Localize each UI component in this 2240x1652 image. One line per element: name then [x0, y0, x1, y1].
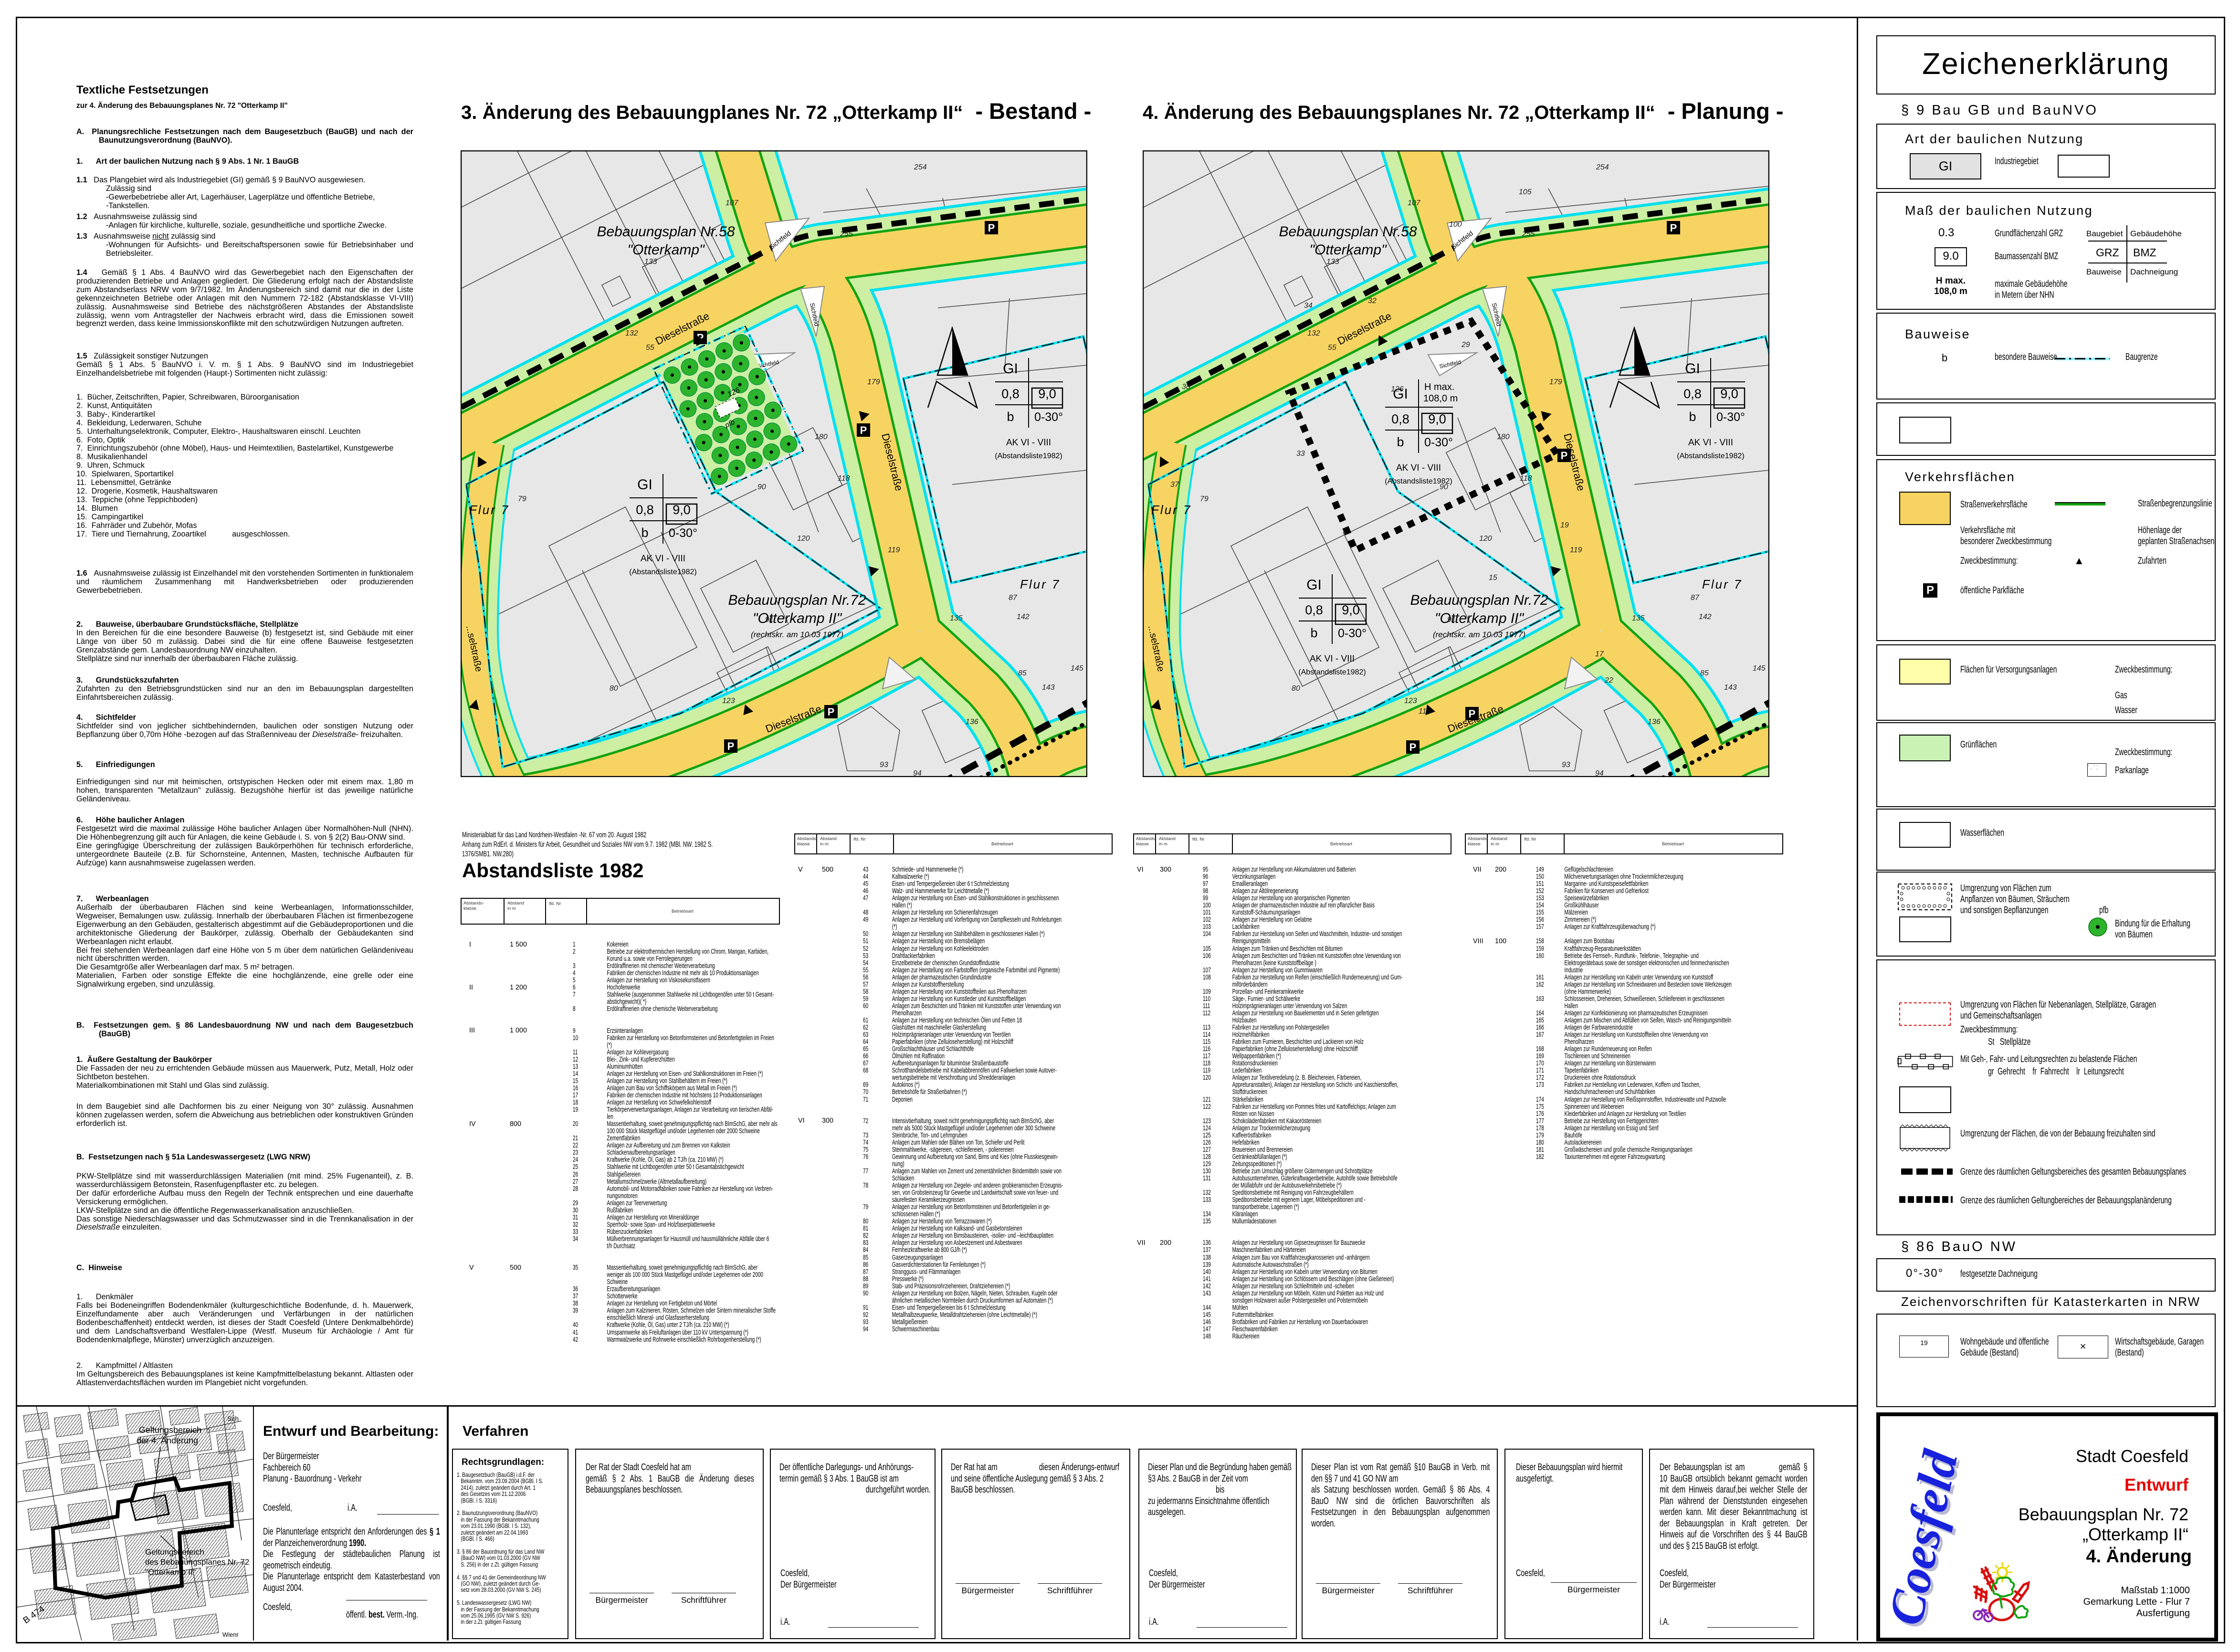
svg-text:133: 133	[1326, 258, 1339, 266]
svg-text:90: 90	[1440, 483, 1448, 491]
svg-text:136: 136	[966, 718, 978, 726]
svg-text:Bebauungsplan Nr.72: Bebauungsplan Nr.72	[728, 592, 866, 608]
svg-text:AK VI - VIII: AK VI - VIII	[1688, 438, 1733, 448]
svg-text:P: P	[828, 706, 835, 718]
svg-text:Wienr: Wienr	[222, 1631, 239, 1638]
svg-text:Flur 7: Flur 7	[1151, 503, 1191, 517]
svg-text:Bebauungsplan Nr.58: Bebauungsplan Nr.58	[597, 224, 735, 240]
svg-text:118: 118	[838, 474, 850, 483]
svg-text:107: 107	[726, 199, 739, 207]
svg-text:85: 85	[1700, 669, 1709, 677]
svg-text:Geltungsbereich: Geltungsbereich	[139, 1425, 201, 1435]
svg-text:37: 37	[1170, 481, 1179, 489]
svg-text:(Abstandsliste1982): (Abstandsliste1982)	[995, 452, 1062, 460]
svg-text:180: 180	[1497, 433, 1510, 441]
svg-text:AK VI - VIII: AK VI - VIII	[1310, 654, 1355, 664]
svg-text:0-30°: 0-30°	[1034, 410, 1063, 424]
svg-text:94: 94	[1595, 769, 1604, 777]
svg-text:136: 136	[1648, 718, 1661, 726]
svg-text:0-30°: 0-30°	[669, 526, 697, 540]
svg-text:100: 100	[1449, 221, 1462, 229]
svg-text:105: 105	[1519, 188, 1532, 196]
svg-text:P: P	[988, 222, 995, 234]
svg-text:255: 255	[1522, 230, 1535, 238]
svg-text:91: 91	[765, 616, 774, 624]
svg-text:135: 135	[1632, 614, 1645, 622]
svg-text:80: 80	[1292, 684, 1300, 693]
svg-text:79: 79	[1200, 495, 1209, 503]
svg-text:0-30°: 0-30°	[1716, 410, 1745, 424]
svg-text:254: 254	[1596, 163, 1609, 171]
svg-text:85: 85	[1018, 669, 1027, 677]
svg-text:9,0: 9,0	[1342, 603, 1360, 617]
svg-text:GI: GI	[1003, 361, 1018, 377]
svg-text:GI: GI	[637, 477, 652, 493]
svg-text:91: 91	[1447, 616, 1456, 624]
svg-text:108,0 m: 108,0 m	[1423, 393, 1458, 404]
svg-text:135: 135	[950, 614, 963, 622]
svg-text:93: 93	[880, 761, 888, 769]
svg-text:AK VI - VIII: AK VI - VIII	[1006, 438, 1051, 448]
svg-text:29: 29	[1461, 341, 1470, 349]
svg-text:254: 254	[914, 163, 927, 171]
svg-text:123: 123	[1404, 697, 1417, 705]
svg-text:55: 55	[1328, 344, 1336, 352]
svg-text:33: 33	[1296, 450, 1305, 458]
svg-text:11: 11	[1419, 707, 1427, 716]
svg-text:79: 79	[518, 495, 526, 503]
svg-text:32: 32	[1368, 297, 1377, 305]
svg-text:0,8: 0,8	[1001, 387, 1020, 401]
svg-text:55: 55	[646, 344, 654, 352]
svg-text:179: 179	[867, 378, 880, 386]
svg-text:93: 93	[1562, 761, 1570, 769]
svg-text:AK VI - VIII: AK VI - VIII	[641, 554, 685, 564]
svg-text:90: 90	[757, 483, 766, 491]
svg-text:38: 38	[1182, 383, 1190, 391]
svg-text:"Otterkamp": "Otterkamp"	[627, 242, 705, 258]
svg-text:Flur 7: Flur 7	[469, 503, 509, 517]
svg-text:(Abstandsliste1982): (Abstandsliste1982)	[1677, 452, 1744, 460]
svg-text:9,0: 9,0	[673, 503, 691, 517]
svg-text:0-30°: 0-30°	[1424, 436, 1453, 449]
svg-text:0,8: 0,8	[1305, 603, 1323, 617]
svg-text:der 4. Änderung: der 4. Änderung	[137, 1436, 198, 1445]
svg-text:22: 22	[1604, 676, 1613, 684]
svg-text:87: 87	[1691, 594, 1700, 602]
svg-text:P: P	[1561, 450, 1568, 462]
svg-text:b: b	[1310, 626, 1317, 640]
svg-text:132: 132	[1307, 329, 1320, 337]
svg-text:9,0: 9,0	[1720, 387, 1738, 401]
svg-text:P: P	[1670, 222, 1677, 234]
svg-text:126: 126	[1391, 385, 1404, 393]
svg-text:P: P	[860, 424, 867, 436]
svg-text:119: 119	[888, 546, 900, 554]
svg-text:Flur 7: Flur 7	[1702, 577, 1742, 591]
svg-text:"Otterkamp II": "Otterkamp II"	[145, 1568, 196, 1577]
svg-text:"Otterkamp": "Otterkamp"	[1309, 242, 1387, 258]
svg-text:des Bebauungsplanes Nr. 72: des Bebauungsplanes Nr. 72	[145, 1557, 249, 1567]
svg-text:145: 145	[1753, 664, 1766, 673]
svg-text:9,0: 9,0	[1038, 387, 1056, 401]
svg-text:AK VI - VIII: AK VI - VIII	[1396, 463, 1441, 473]
svg-text:132: 132	[625, 329, 638, 337]
svg-text:(Abstandsliste1982): (Abstandsliste1982)	[1298, 668, 1366, 676]
svg-text:107: 107	[1408, 199, 1421, 207]
svg-text:P: P	[1409, 741, 1417, 753]
svg-text:87: 87	[1009, 594, 1018, 602]
svg-text:(rechtskr. am 10.03 1977): (rechtskr. am 10.03 1977)	[751, 630, 843, 639]
svg-text:145: 145	[1071, 664, 1083, 673]
svg-text:P: P	[727, 740, 735, 752]
svg-text:b: b	[1007, 410, 1014, 424]
svg-text:Bebauungsplan Nr.58: Bebauungsplan Nr.58	[1279, 224, 1417, 240]
svg-text:133: 133	[644, 258, 657, 266]
svg-text:255: 255	[840, 230, 853, 238]
svg-text:15: 15	[1489, 574, 1497, 582]
svg-text:Flur 7: Flur 7	[1020, 577, 1060, 591]
svg-text:0,8: 0,8	[1391, 412, 1409, 426]
svg-text:143: 143	[1724, 684, 1737, 692]
svg-text:94: 94	[913, 769, 922, 777]
svg-text:120: 120	[1479, 535, 1492, 543]
svg-text:19: 19	[1560, 521, 1569, 529]
svg-text:0,8: 0,8	[1683, 387, 1702, 401]
svg-text:180: 180	[815, 433, 828, 441]
svg-text:179: 179	[1549, 378, 1562, 386]
svg-text:b: b	[641, 526, 648, 540]
svg-text:b: b	[1689, 410, 1696, 424]
svg-text:9,0: 9,0	[1428, 412, 1446, 426]
svg-text:Bebauungsplan Nr.72: Bebauungsplan Nr.72	[1410, 592, 1548, 608]
svg-text:(Abstandsliste1982): (Abstandsliste1982)	[629, 568, 696, 576]
svg-text:119: 119	[1570, 546, 1582, 554]
svg-text:142: 142	[1017, 613, 1030, 621]
svg-text:0-30°: 0-30°	[1338, 627, 1367, 640]
svg-text:0,8: 0,8	[636, 503, 654, 517]
svg-text:Sch: Sch	[227, 1415, 239, 1422]
svg-text:(rechtskr. am 10.03 1977): (rechtskr. am 10.03 1977)	[1433, 630, 1525, 639]
svg-text:143: 143	[1042, 684, 1055, 692]
svg-text:b: b	[1397, 435, 1404, 449]
svg-text:34: 34	[1304, 302, 1313, 310]
svg-text:H max.: H max.	[1424, 382, 1454, 392]
svg-text:120: 120	[797, 535, 810, 543]
svg-text:118: 118	[1520, 474, 1532, 483]
svg-text:17: 17	[1595, 650, 1604, 658]
svg-text:123: 123	[722, 697, 735, 705]
svg-text:142: 142	[1699, 613, 1712, 621]
svg-text:80: 80	[610, 684, 618, 693]
svg-text:GI: GI	[1306, 577, 1322, 593]
svg-text:P: P	[1469, 708, 1476, 720]
svg-text:GI: GI	[1685, 361, 1700, 377]
